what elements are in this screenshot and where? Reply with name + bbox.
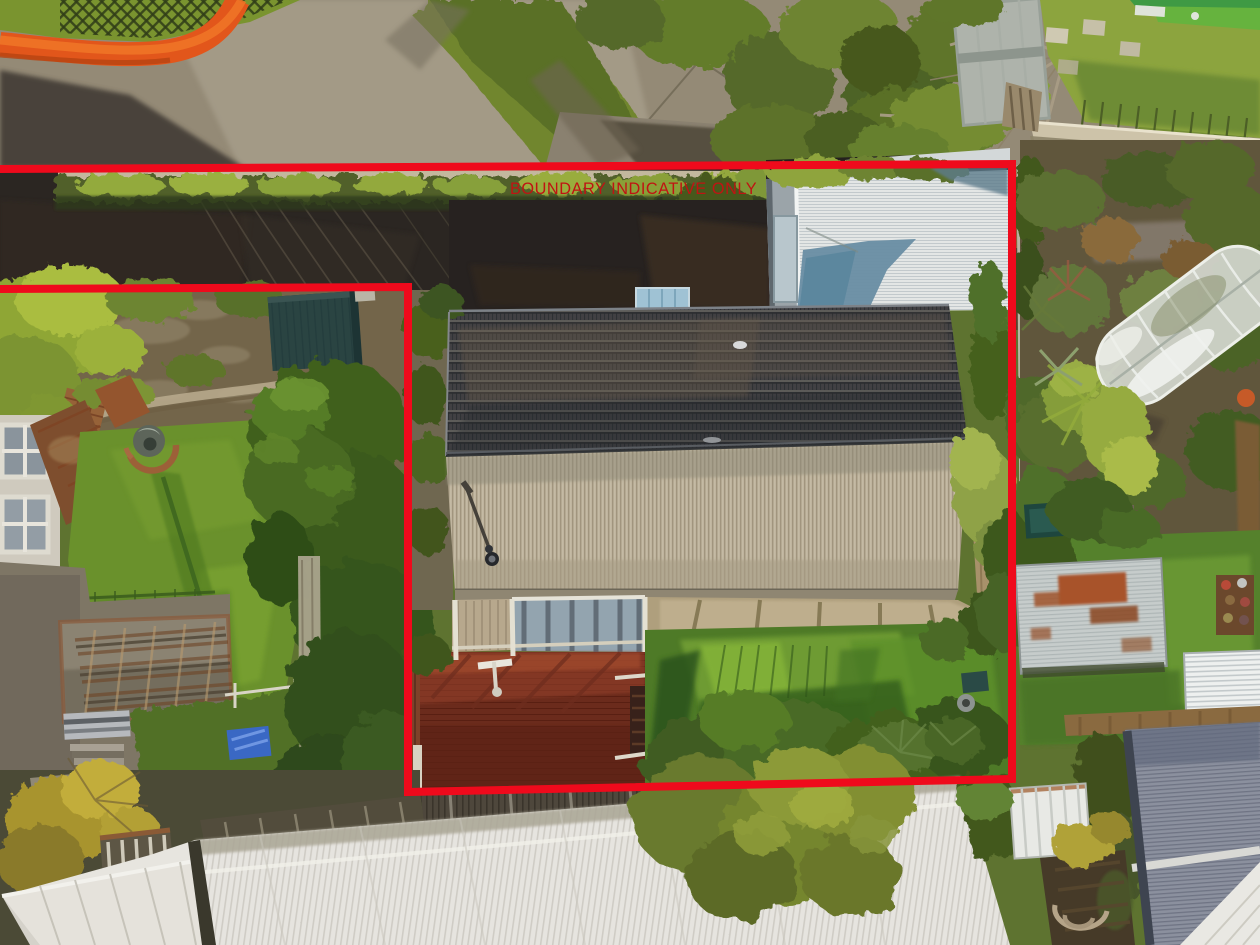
svg-text:BOUNDARY INDICATIVE ONLY: BOUNDARY INDICATIVE ONLY [510,180,757,198]
